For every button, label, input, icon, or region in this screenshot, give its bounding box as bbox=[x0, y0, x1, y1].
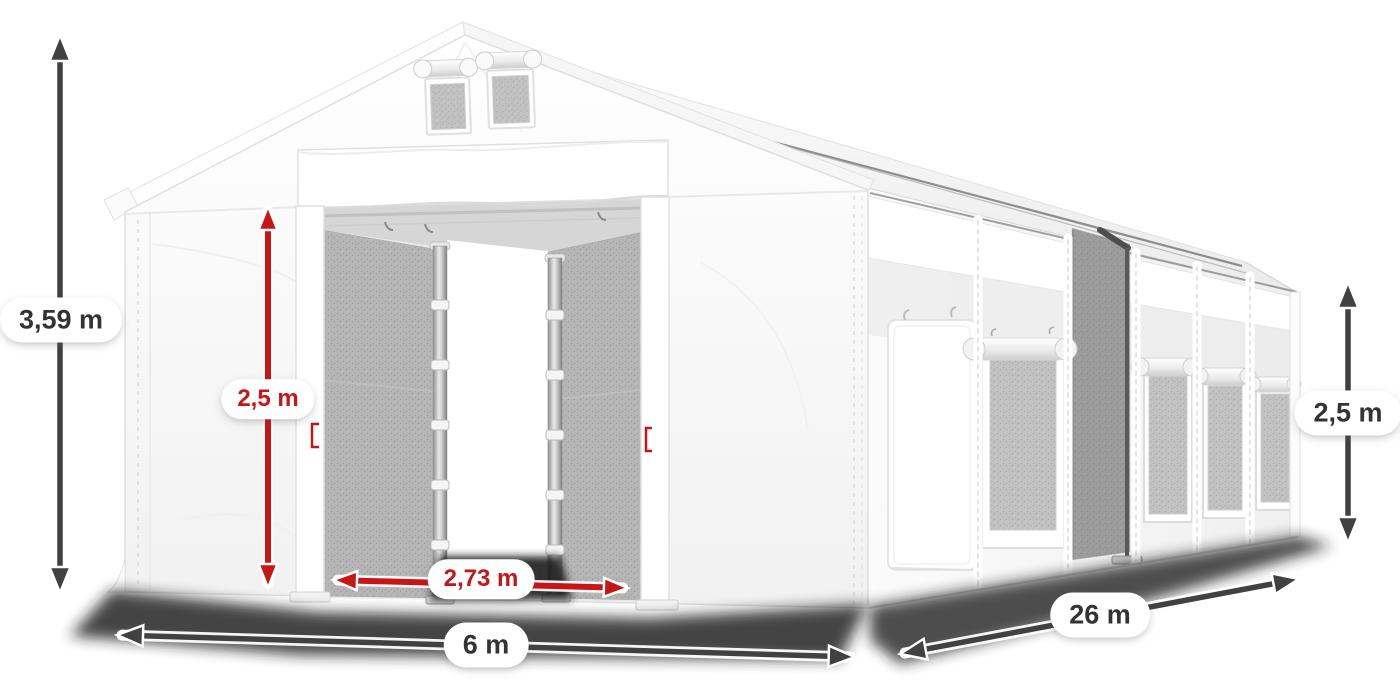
entrance-jamb-right bbox=[641, 197, 669, 606]
width-label: 6 m bbox=[447, 625, 526, 664]
entrance-width-label: 2,73 m bbox=[431, 562, 532, 596]
length-label: 26 m bbox=[1053, 595, 1147, 634]
entrance-height-label: 2,5 m bbox=[224, 382, 311, 416]
tent-illustration bbox=[0, 0, 1400, 700]
interior-mesh-left bbox=[322, 230, 440, 598]
side-height-label: 2,5 m bbox=[1297, 393, 1398, 432]
tent-side-wall bbox=[868, 188, 1301, 608]
product-dimension-diagram: 3,59 m 2,5 m 2,73 m 2,5 m 26 m 6 m bbox=[0, 0, 1400, 700]
tent bbox=[104, 22, 1301, 610]
entrance-opening bbox=[290, 140, 678, 610]
total-height-label: 3,59 m bbox=[3, 300, 119, 339]
